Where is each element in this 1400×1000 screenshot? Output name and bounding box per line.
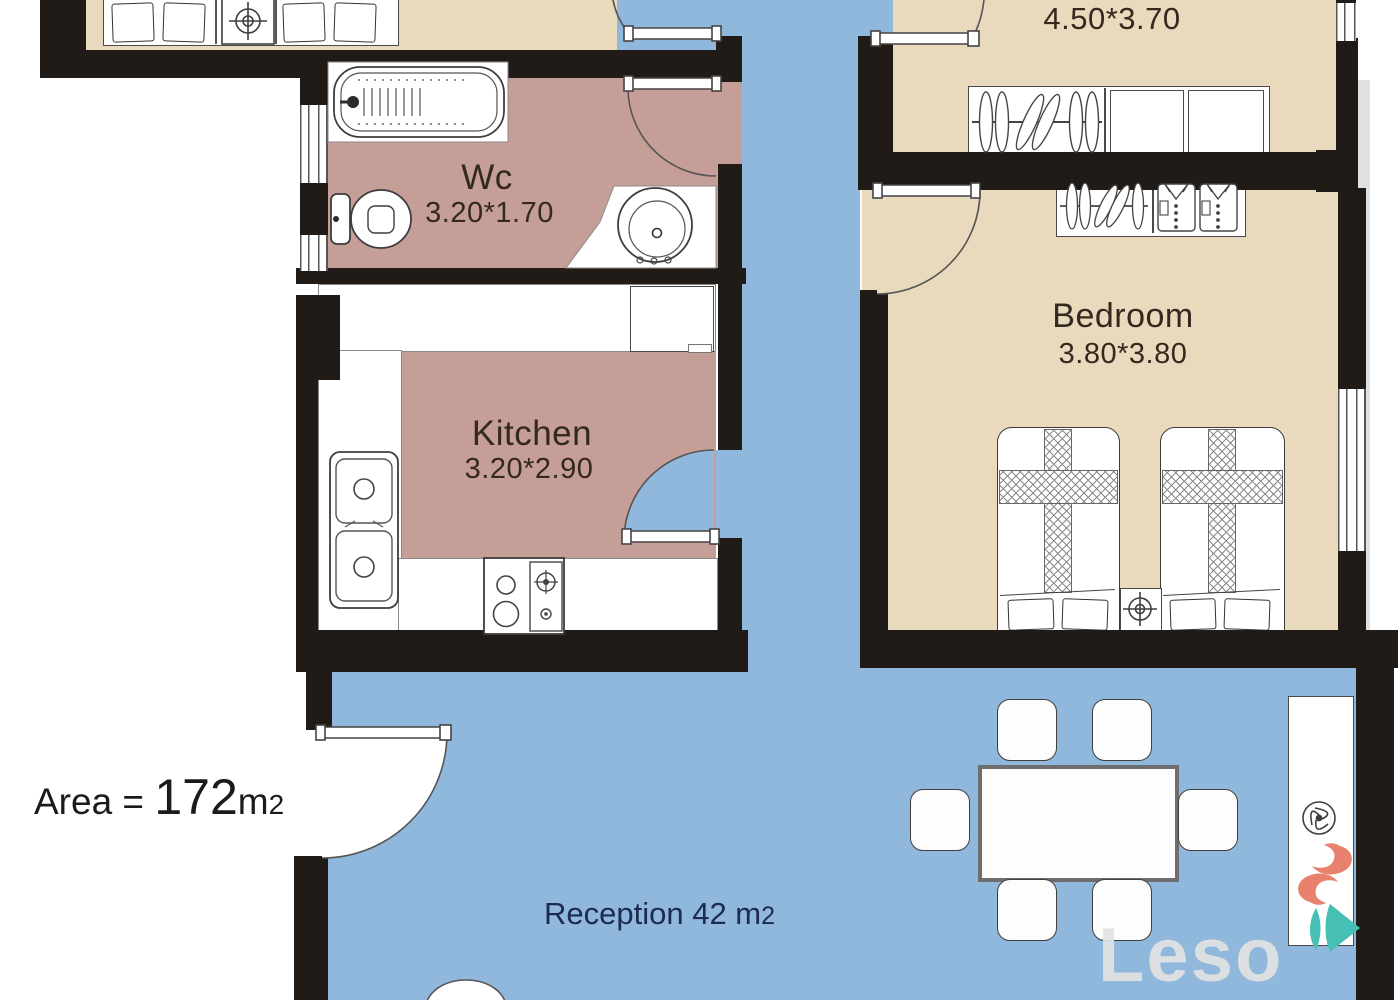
wall [1338,188,1366,386]
wall [860,630,1398,668]
reception-label: Reception 42 m2 [544,896,775,932]
bedroom-dims-label: 3.80*3.80 [1038,338,1208,371]
window [1338,386,1366,554]
reception-label-text: Reception 42 m [544,896,761,931]
pillow [333,2,376,42]
hallway-floor-main [740,0,860,660]
bedroom-doorway-floor [862,190,888,294]
top-left-beds-divider [215,0,217,44]
bed-blanket-band-vertical [1208,429,1236,593]
wall [858,152,1340,190]
wall [296,295,340,380]
dining-table [978,765,1179,882]
wall [296,378,318,632]
sideboard-cabinet [1288,696,1354,946]
wall [40,50,716,78]
area-unit-sub: 2 [269,789,285,820]
fridge-handle [688,344,712,353]
hallway-floor-top-right [858,0,894,38]
wc-dims-label: 3.20*1.70 [407,197,572,230]
wall [296,630,748,672]
fridge [630,286,714,352]
pillow [1007,598,1054,631]
area-value: 172 [154,769,237,825]
pillow [1169,598,1216,631]
wall [294,856,328,1000]
wc-doorway-floor [716,82,742,166]
top-left-beds-divider2 [275,0,277,44]
dining-chair [1178,789,1238,851]
dining-chair [1092,699,1152,761]
window [1336,0,1356,44]
wc-label: Wc [425,158,549,198]
pillow [282,2,325,42]
total-area-label: Area = 172m2 [34,768,284,826]
dining-chair [910,789,970,851]
wall [306,646,332,730]
bedroom-label: Bedroom [1038,297,1208,336]
bed-blanket-band-horizontal [999,470,1118,504]
entrance-opening [294,730,324,858]
wall [718,164,742,268]
reception-label-sup: 2 [761,902,775,930]
window [300,102,328,186]
kitchen-counter-left [318,350,402,634]
window [300,232,328,274]
wardrobe-shelf-box [1110,90,1184,154]
wall [1316,150,1358,192]
top-right-room-dims-label: 4.50*3.70 [1028,1,1196,37]
wall [860,290,888,632]
wardrobe-divider [1104,88,1106,156]
dining-chair [997,879,1057,941]
kitchen-counter-bottom [398,558,718,634]
wall [858,36,893,160]
bed-blanket-band-vertical [1044,429,1072,593]
wall [718,284,742,450]
dining-chair [997,699,1057,761]
floor-plan: Wc 3.20*1.70 Kitchen 3.20*2.90 Bedroom 3… [0,0,1400,1000]
pillow [1061,598,1108,631]
wall [1356,666,1394,1000]
kitchen-dims-label: 3.20*2.90 [445,453,613,486]
wall [716,36,742,82]
bed-blanket-band-horizontal [1162,470,1283,504]
nightstand [1120,588,1162,632]
wall [1338,548,1366,632]
wardrobe-shelf-box [1188,90,1264,154]
watermark-text: Leso [1098,912,1283,999]
area-prefix: Area = [34,781,154,822]
pillow [111,2,154,42]
kitchen-label: Kitchen [448,414,616,454]
area-unit: m [238,781,269,822]
pillow [1223,598,1270,631]
wall [296,268,746,284]
kitchen-doorway-floor [716,450,744,540]
wall [1336,38,1358,154]
pillow [162,2,205,42]
